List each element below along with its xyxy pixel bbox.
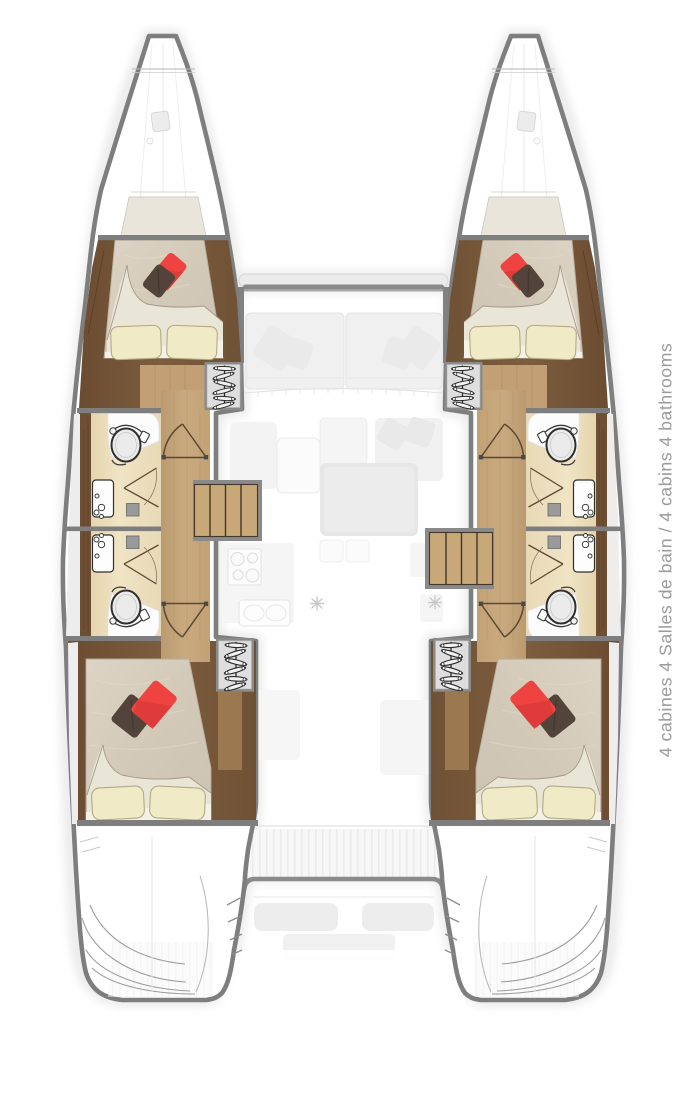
svg-text:4 cabines 4 Salles de bain / 4: 4 cabines 4 Salles de bain / 4 cabins 4 …	[656, 343, 676, 757]
